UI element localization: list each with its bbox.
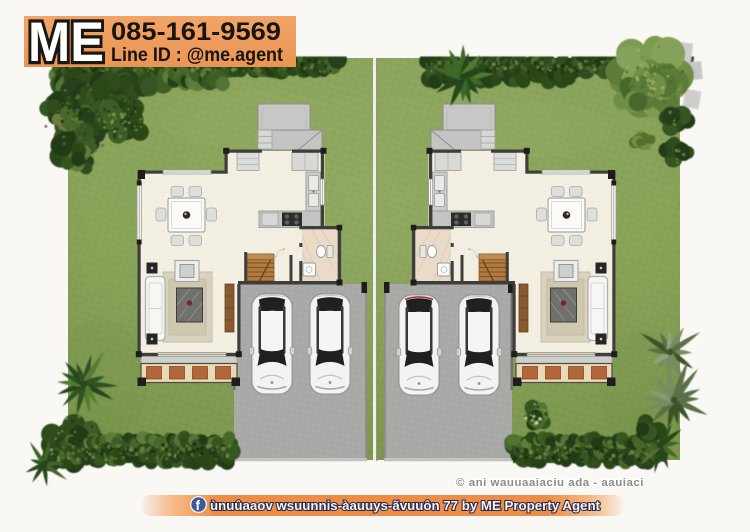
svg-text:085-161-9569: 085-161-9569	[111, 18, 281, 46]
svg-text:f: f	[196, 498, 201, 513]
svg-text:ME: ME	[28, 10, 104, 73]
svg-text:Line ID : @me.agent: Line ID : @me.agent	[111, 45, 284, 66]
svg-text:© ani wauuaaiaciu ada - aauiac: © ani wauuaaiaciu ada - aauiaci	[456, 477, 644, 489]
svg-text:ùnuûaaov wsuunnis-àauuys-ãvuuô: ùnuûaaov wsuunnis-àauuys-ãvuuôn 77 by ME…	[210, 499, 601, 513]
